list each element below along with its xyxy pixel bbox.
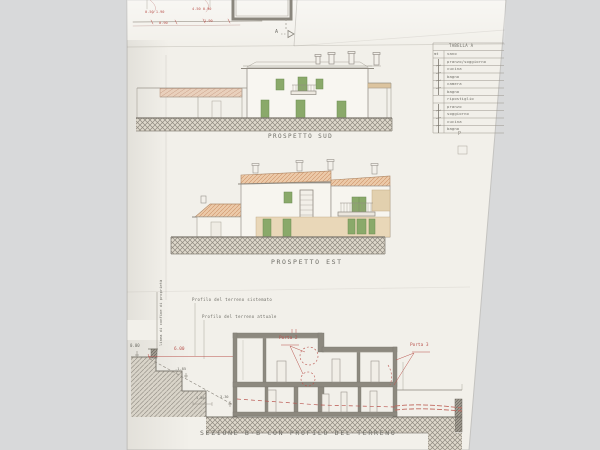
profilo-sistemato-label: Profilo del terreno sistemato	[192, 298, 272, 302]
legend-row: cucina	[447, 67, 462, 71]
section-marker-label: A	[275, 30, 278, 35]
porta3-label: Porta 3	[410, 344, 429, 348]
legend-row: pranzo/soggiorno	[447, 60, 486, 64]
porta2-label: Porta 2	[279, 337, 298, 341]
legend-table-title: TABELLA A	[449, 44, 473, 48]
plan-dimension: 0.50 1.90	[145, 11, 164, 15]
profilo-attuale-label: Profilo del terreno attuale	[202, 315, 277, 319]
legend-row: cucina	[447, 120, 462, 124]
plan-dimension: 0.90	[159, 22, 168, 26]
legend-row: camera	[447, 82, 462, 86]
level-minus-185: -1.85	[175, 368, 186, 372]
legend-unit-header: mt	[434, 52, 439, 56]
fold-highlight-top	[127, 0, 505, 46]
elevation-sud-title: PROSPETTO SUD	[268, 134, 333, 140]
side-door	[212, 101, 221, 118]
legend-row: pranzo	[447, 105, 462, 109]
level-zero: 0.00	[130, 344, 140, 348]
plan-dimension: 1.90	[204, 20, 213, 24]
drawing-linework	[0, 0, 600, 450]
stone-band	[160, 89, 242, 98]
ground-strip-sud	[136, 118, 392, 131]
photo-of-architectural-drawing: TABELLA A mt vano pranzo/soggiorno cucin…	[0, 0, 600, 450]
elevation-est-title: PROSPETTO EST	[271, 259, 343, 266]
property-boundary-label: linea di confine di proprietà	[159, 280, 163, 346]
dimension-150: 1.50	[196, 397, 204, 401]
legend-row: ripostiglio	[447, 97, 474, 101]
dimension-6m: 6.00	[174, 348, 185, 352]
plan-dimension: 4.50 0.90	[192, 8, 211, 12]
section-title: SEZIONE B-B CON PROFILO DEL TERRENO	[200, 430, 396, 437]
ground-strip-est	[171, 237, 385, 254]
upper-windows	[276, 77, 323, 91]
legend-row: bagno	[447, 90, 459, 94]
fold-shadow-left	[127, 40, 169, 320]
clipped-label: P	[458, 132, 461, 137]
legend-row: soggiorno	[447, 112, 469, 116]
legend-row: vano	[447, 52, 457, 56]
legend-row: bagno	[447, 75, 459, 79]
level-minus-330: -3.30	[218, 396, 229, 400]
